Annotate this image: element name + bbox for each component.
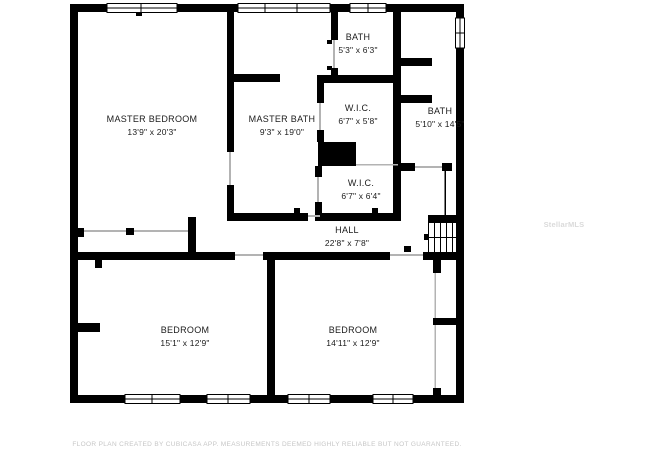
svg-text:5'3" x 6'3": 5'3" x 6'3" (338, 45, 377, 55)
room-labels: MASTER BEDROOM 13'9" x 20'3" MASTER BATH… (107, 32, 465, 348)
mls-watermark: StellarMLS (544, 220, 585, 229)
svg-text:HALL: HALL (335, 225, 359, 235)
svg-text:13'9" x 20'3": 13'9" x 20'3" (127, 127, 176, 137)
window (238, 4, 330, 13)
room-label-hall: HALL 22'8" x 7'8" (325, 225, 369, 248)
svg-text:14'11" x 12'9": 14'11" x 12'9" (326, 338, 380, 348)
window (288, 395, 330, 404)
door-openings (78, 40, 442, 256)
room-label-master-bath: MASTER BATH 9'3" x 19'0" (249, 114, 316, 137)
room-label-bath-top: BATH 5'3" x 6'3" (338, 32, 377, 55)
svg-text:6'7" x 5'8": 6'7" x 5'8" (338, 116, 377, 126)
window (125, 395, 180, 404)
window (107, 4, 177, 13)
svg-text:15'1" x 12'9": 15'1" x 12'9" (160, 338, 209, 348)
window (207, 395, 250, 404)
room-label-master-bedroom: MASTER BEDROOM 13'9" x 20'3" (107, 114, 198, 137)
interior-walls (70, 12, 464, 403)
svg-text:BEDROOM: BEDROOM (329, 325, 378, 335)
floor-plan-drawing: MASTER BEDROOM 13'9" x 20'3" MASTER BATH… (0, 0, 650, 450)
floor-plan-page: MASTER BEDROOM 13'9" x 20'3" MASTER BATH… (0, 0, 650, 450)
window (373, 395, 413, 404)
staircase (428, 223, 456, 252)
svg-text:22'8" x 7'8": 22'8" x 7'8" (325, 238, 369, 248)
svg-text:6'7" x 6'4": 6'7" x 6'4" (341, 191, 380, 201)
room-label-bedroom-right: BEDROOM 14'11" x 12'9" (326, 325, 380, 348)
window (456, 18, 465, 48)
svg-text:BATH: BATH (428, 106, 453, 116)
svg-text:MASTER BATH: MASTER BATH (249, 114, 316, 124)
svg-text:BATH: BATH (346, 32, 371, 42)
svg-text:W.I.C.: W.I.C. (345, 103, 371, 113)
window (350, 4, 386, 13)
svg-text:BEDROOM: BEDROOM (161, 325, 210, 335)
svg-text:MASTER BEDROOM: MASTER BEDROOM (107, 114, 198, 124)
room-label-bedroom-left: BEDROOM 15'1" x 12'9" (160, 325, 209, 348)
svg-text:9'3" x 19'0": 9'3" x 19'0" (260, 127, 304, 137)
svg-text:W.I.C.: W.I.C. (348, 178, 374, 188)
svg-text:5'10" x 14'5": 5'10" x 14'5" (415, 119, 464, 129)
room-label-wic-lower: W.I.C. 6'7" x 6'4" (341, 178, 380, 201)
footer-disclaimer: FLOOR PLAN CREATED BY CUBICASA APP. MEAS… (72, 441, 461, 448)
room-label-wic-upper: W.I.C. 6'7" x 5'8" (338, 103, 377, 126)
